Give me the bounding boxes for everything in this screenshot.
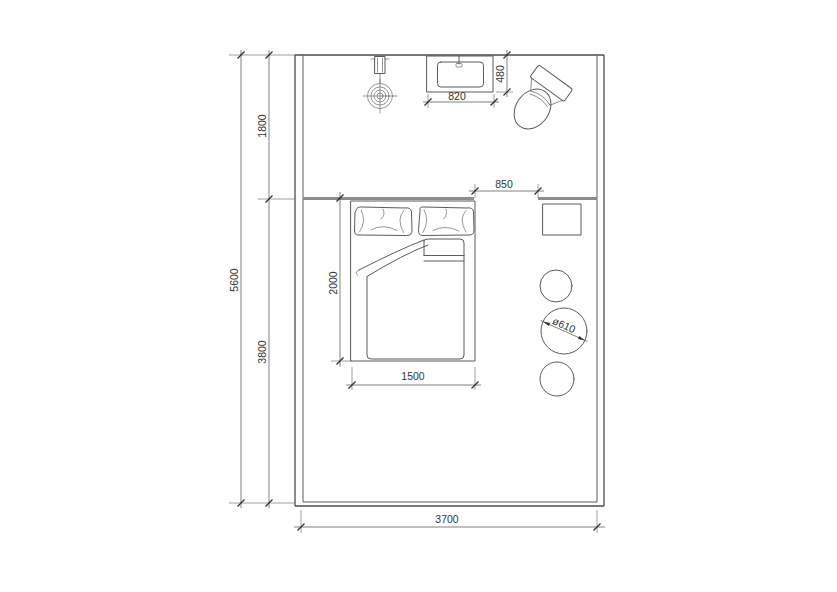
bed-blanket	[356, 239, 464, 359]
bed-frame	[351, 201, 475, 361]
stool-bottom	[540, 362, 574, 396]
dim-bed-length: 2000	[327, 192, 352, 367]
floor-plan-canvas: 5600 1800 3800 3700 820	[0, 0, 837, 592]
basin-bowl	[438, 62, 484, 87]
dim-table-diameter-label: ø610	[551, 314, 578, 335]
pillow-right	[418, 207, 474, 236]
dim-bed-width: 1500	[346, 367, 481, 390]
room-walls	[295, 55, 604, 506]
toilet-tank	[530, 65, 573, 102]
shower-head-icon	[363, 79, 397, 113]
wash-basin	[427, 56, 493, 92]
dim-basin-depth-label: 480	[494, 65, 506, 83]
nightstand	[543, 204, 581, 235]
dim-basin-width-label: 820	[448, 90, 466, 102]
double-bed	[351, 201, 475, 361]
floor-plan-page: 5600 1800 3800 3700 820	[0, 0, 837, 592]
toilet	[503, 65, 573, 139]
dim-basin-depth: 480	[494, 50, 513, 97]
pillow-left	[354, 207, 412, 236]
dim-table-diameter: ø610	[541, 314, 588, 341]
shower-fixture	[363, 57, 397, 114]
dim-bed-length-label: 2000	[327, 271, 339, 295]
dim-bed-width-label: 1500	[401, 370, 425, 382]
dim-room-width: 3700	[294, 510, 605, 533]
toilet-bowl	[507, 82, 559, 136]
dim-bath-zone-depth-label: 1800	[256, 114, 268, 138]
blanket-fold-edge	[359, 240, 424, 270]
dimensions: 5600 1800 3800 3700 820	[228, 50, 605, 533]
stool-top	[540, 270, 572, 302]
shower-valve	[375, 57, 385, 74]
dim-zone-depths: 1800 3800	[256, 50, 295, 508]
dim-room-depth-total-label: 5600	[228, 268, 240, 292]
dim-opening-width-label: 850	[495, 178, 513, 190]
dim-opening-width: 850	[469, 178, 544, 199]
dim-room-width-label: 3700	[435, 513, 459, 525]
dim-sleep-zone-depth-label: 3800	[256, 340, 268, 364]
